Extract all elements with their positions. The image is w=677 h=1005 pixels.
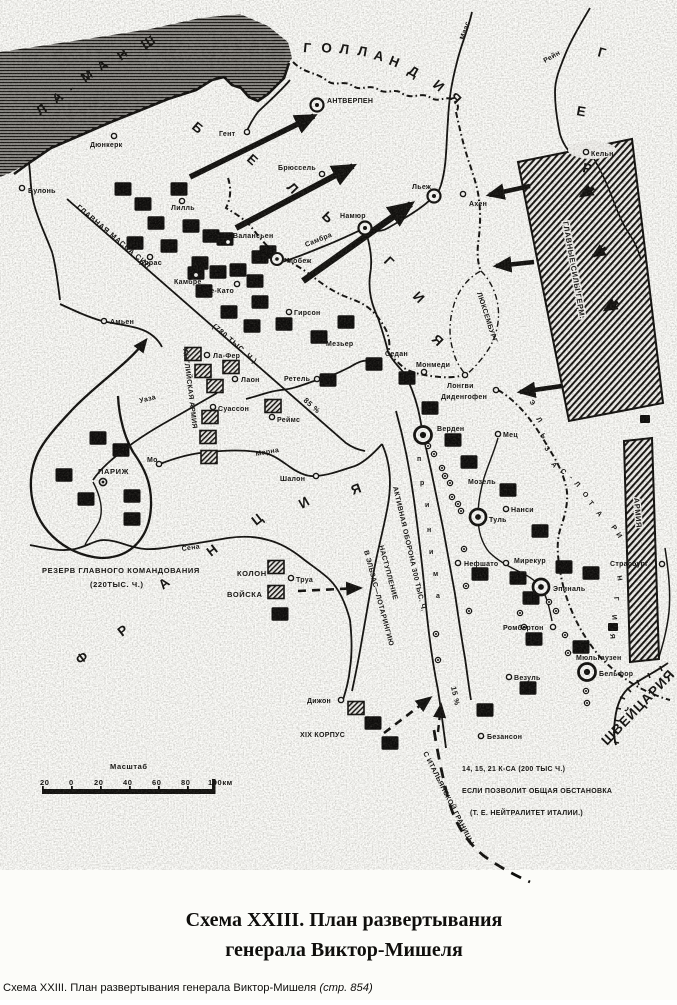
svg-text:Схема XXIII. План развертывани: Схема XXIII. План развертывания [186, 909, 503, 931]
svg-text:генерала Виктор-Мишеля: генерала Виктор-Мишеля [225, 939, 463, 961]
svg-text:Схема XXIII. План развертывани: Схема XXIII. План развертывания генерала… [3, 982, 373, 994]
